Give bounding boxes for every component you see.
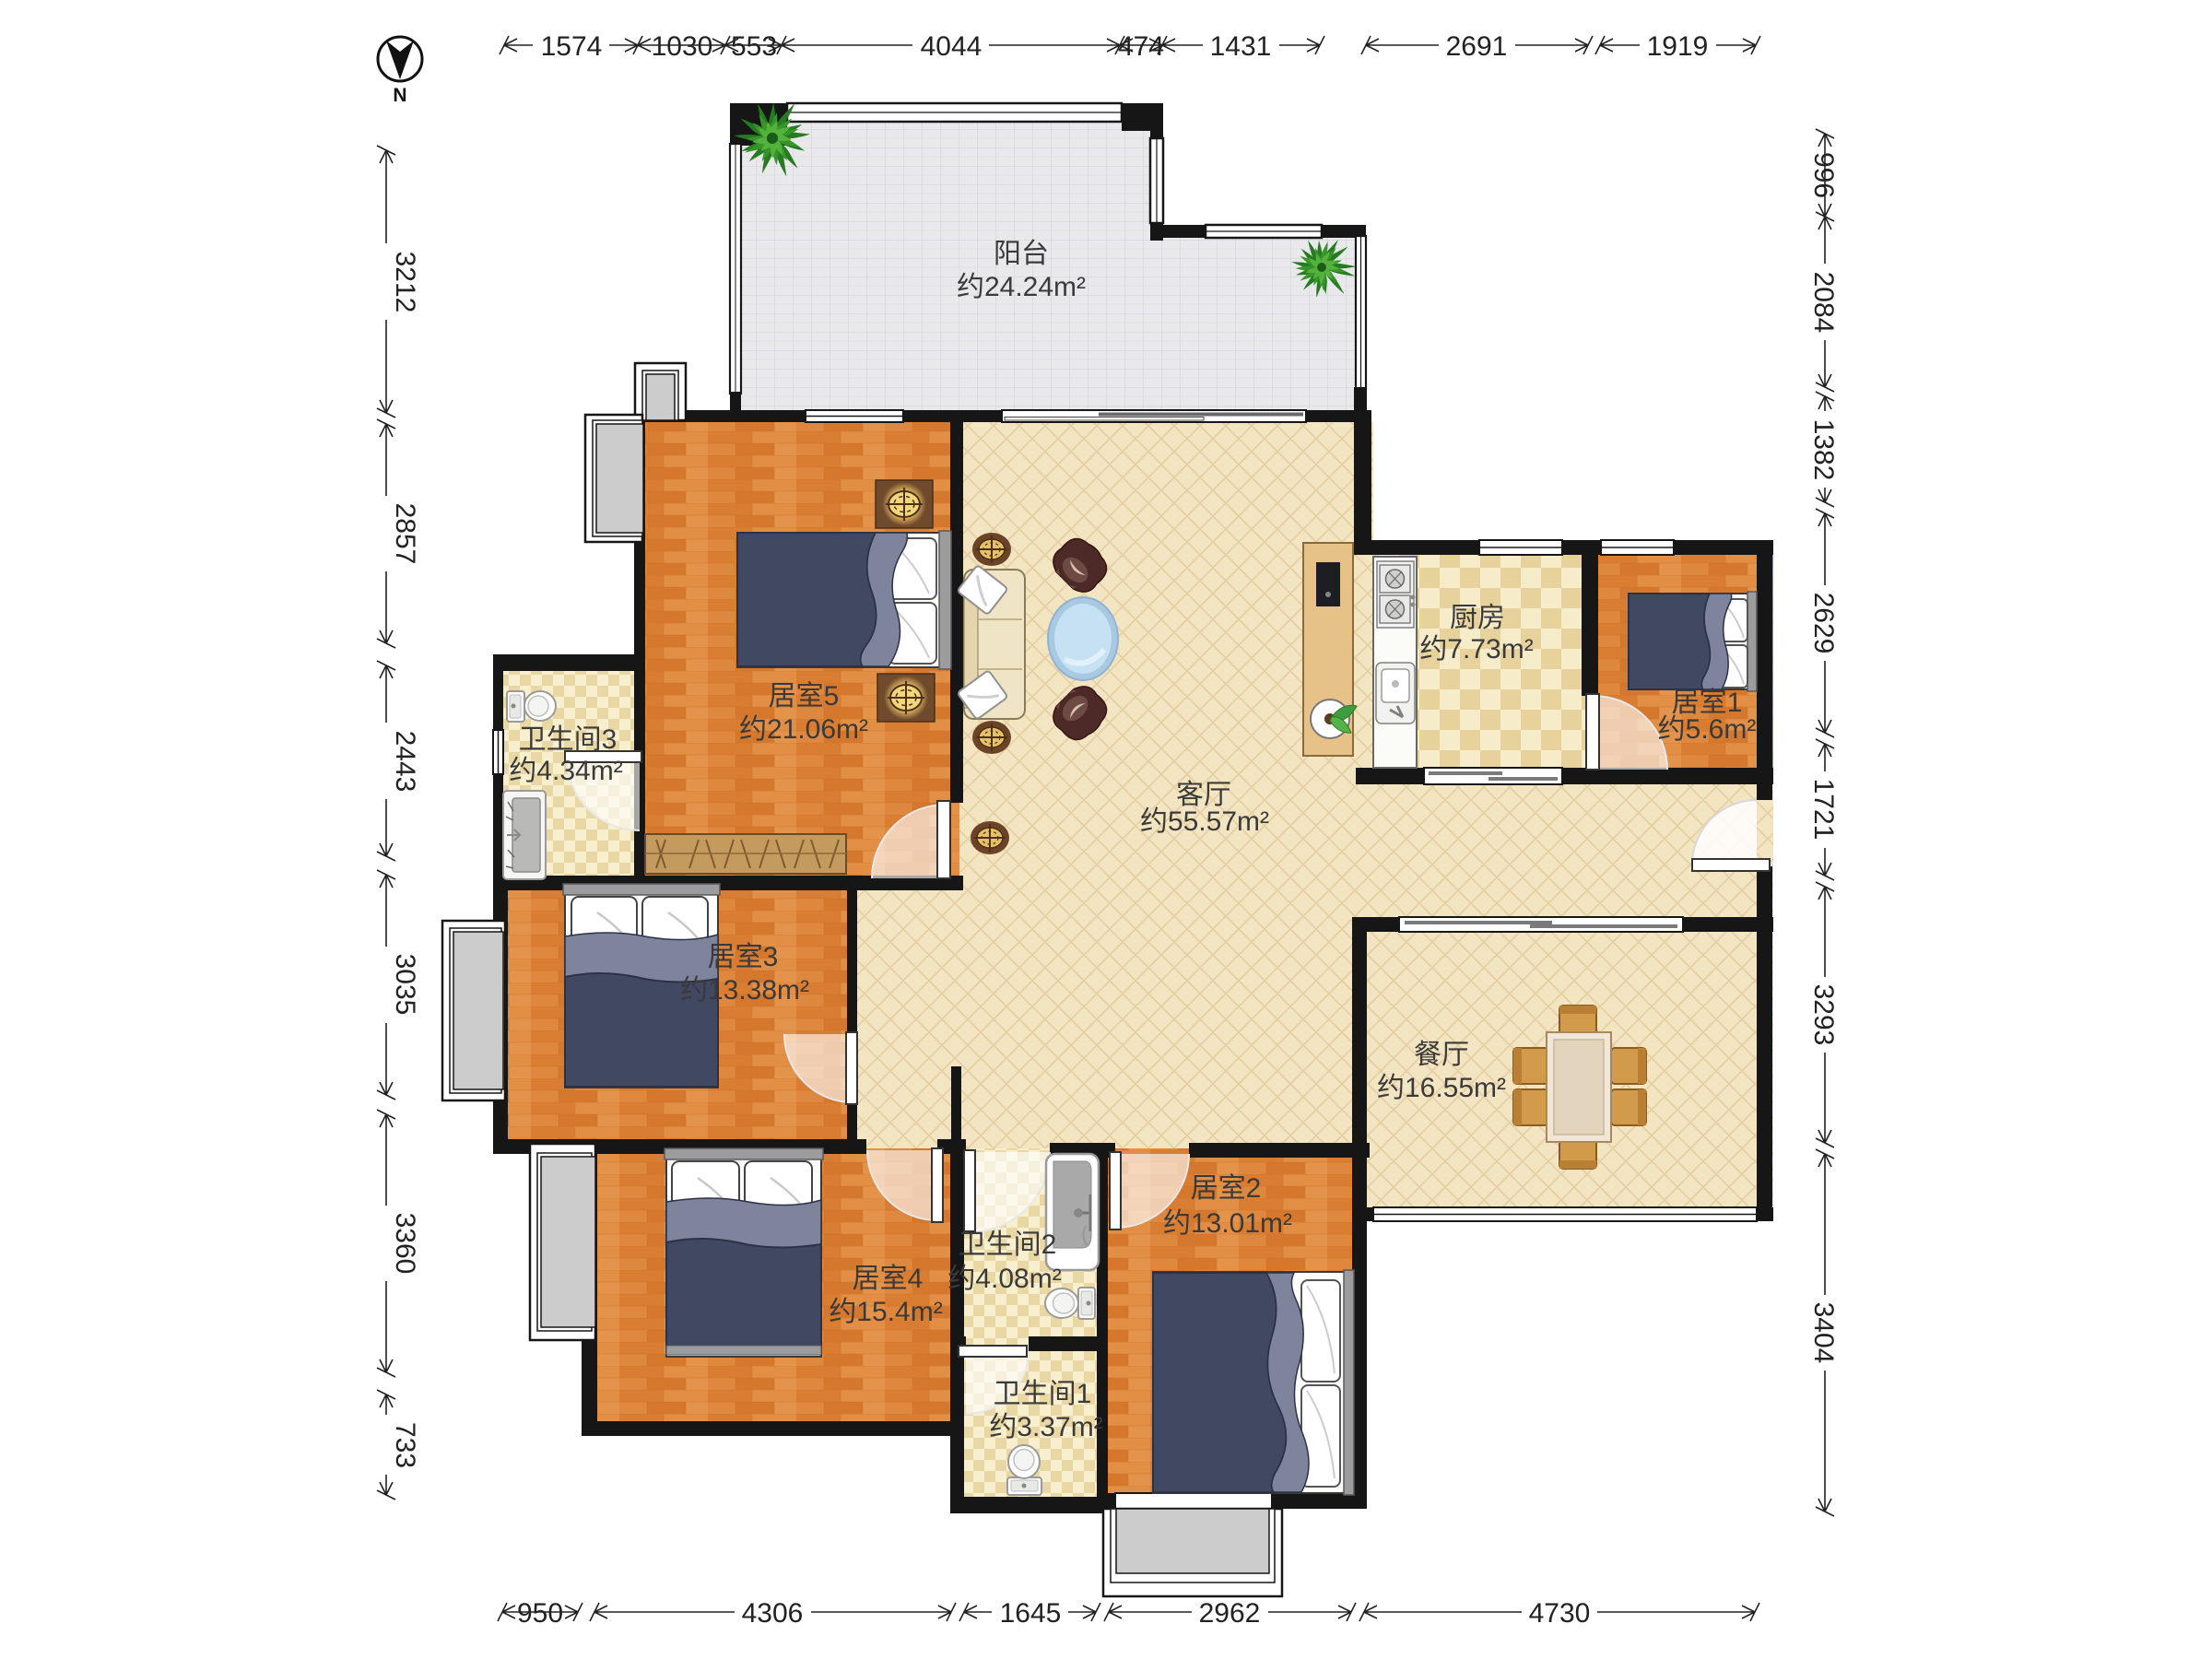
svg-text:2962: 2962 — [1199, 1598, 1261, 1629]
svg-text:1574: 1574 — [541, 31, 603, 62]
svg-text:约4.34m²: 约4.34m² — [509, 756, 622, 786]
svg-text:3212: 3212 — [390, 252, 420, 313]
svg-text:N: N — [393, 85, 406, 106]
svg-text:2857: 2857 — [390, 503, 420, 565]
svg-text:居室2: 居室2 — [1191, 1173, 1262, 1204]
svg-text:3293: 3293 — [1808, 984, 1839, 1046]
svg-text:3404: 3404 — [1808, 1302, 1839, 1364]
svg-text:居室5: 居室5 — [769, 681, 840, 712]
svg-text:474: 474 — [1118, 31, 1164, 62]
svg-text:1382: 1382 — [1808, 419, 1839, 481]
svg-text:2691: 2691 — [1446, 31, 1508, 62]
svg-text:约4.08m²: 约4.08m² — [947, 1264, 1061, 1294]
svg-text:1645: 1645 — [1000, 1598, 1062, 1629]
svg-text:1030: 1030 — [652, 31, 713, 62]
svg-text:餐厅: 餐厅 — [1414, 1040, 1469, 1070]
svg-text:居室4: 居室4 — [853, 1264, 924, 1294]
svg-text:3360: 3360 — [390, 1213, 420, 1275]
svg-text:约7.73m²: 约7.73m² — [1419, 634, 1533, 665]
svg-text:卫生间2: 卫生间2 — [959, 1230, 1057, 1260]
svg-text:约3.37m²: 约3.37m² — [989, 1412, 1102, 1442]
svg-text:阳台: 阳台 — [994, 239, 1049, 269]
svg-text:厨房: 厨房 — [1450, 603, 1505, 633]
svg-text:约16.55m²: 约16.55m² — [1377, 1073, 1506, 1103]
svg-text:996: 996 — [1808, 152, 1839, 198]
svg-text:553: 553 — [731, 31, 777, 62]
svg-text:约24.24m²: 约24.24m² — [957, 272, 1086, 302]
svg-text:950: 950 — [517, 1598, 563, 1629]
svg-text:约13.01m²: 约13.01m² — [1163, 1208, 1292, 1239]
svg-text:3035: 3035 — [390, 954, 420, 1016]
svg-text:4306: 4306 — [742, 1598, 804, 1629]
svg-text:1721: 1721 — [1808, 779, 1839, 841]
svg-text:733: 733 — [390, 1422, 420, 1468]
svg-text:1919: 1919 — [1647, 31, 1709, 62]
svg-text:2629: 2629 — [1808, 593, 1839, 654]
svg-text:约5.6m²: 约5.6m² — [1658, 714, 1757, 745]
svg-text:卫生间3: 卫生间3 — [519, 724, 618, 755]
svg-text:约55.57m²: 约55.57m² — [1140, 806, 1269, 837]
svg-text:2084: 2084 — [1808, 272, 1839, 334]
svg-text:4730: 4730 — [1529, 1598, 1591, 1629]
svg-text:约15.4m²: 约15.4m² — [829, 1297, 942, 1327]
svg-text:居室3: 居室3 — [708, 942, 779, 972]
svg-text:4044: 4044 — [921, 31, 982, 62]
svg-text:约21.06m²: 约21.06m² — [739, 714, 868, 745]
svg-text:约13.38m²: 约13.38m² — [680, 975, 809, 1006]
svg-text:2443: 2443 — [390, 731, 420, 793]
svg-text:1431: 1431 — [1210, 31, 1272, 62]
svg-text:卫生间1: 卫生间1 — [994, 1379, 1092, 1409]
